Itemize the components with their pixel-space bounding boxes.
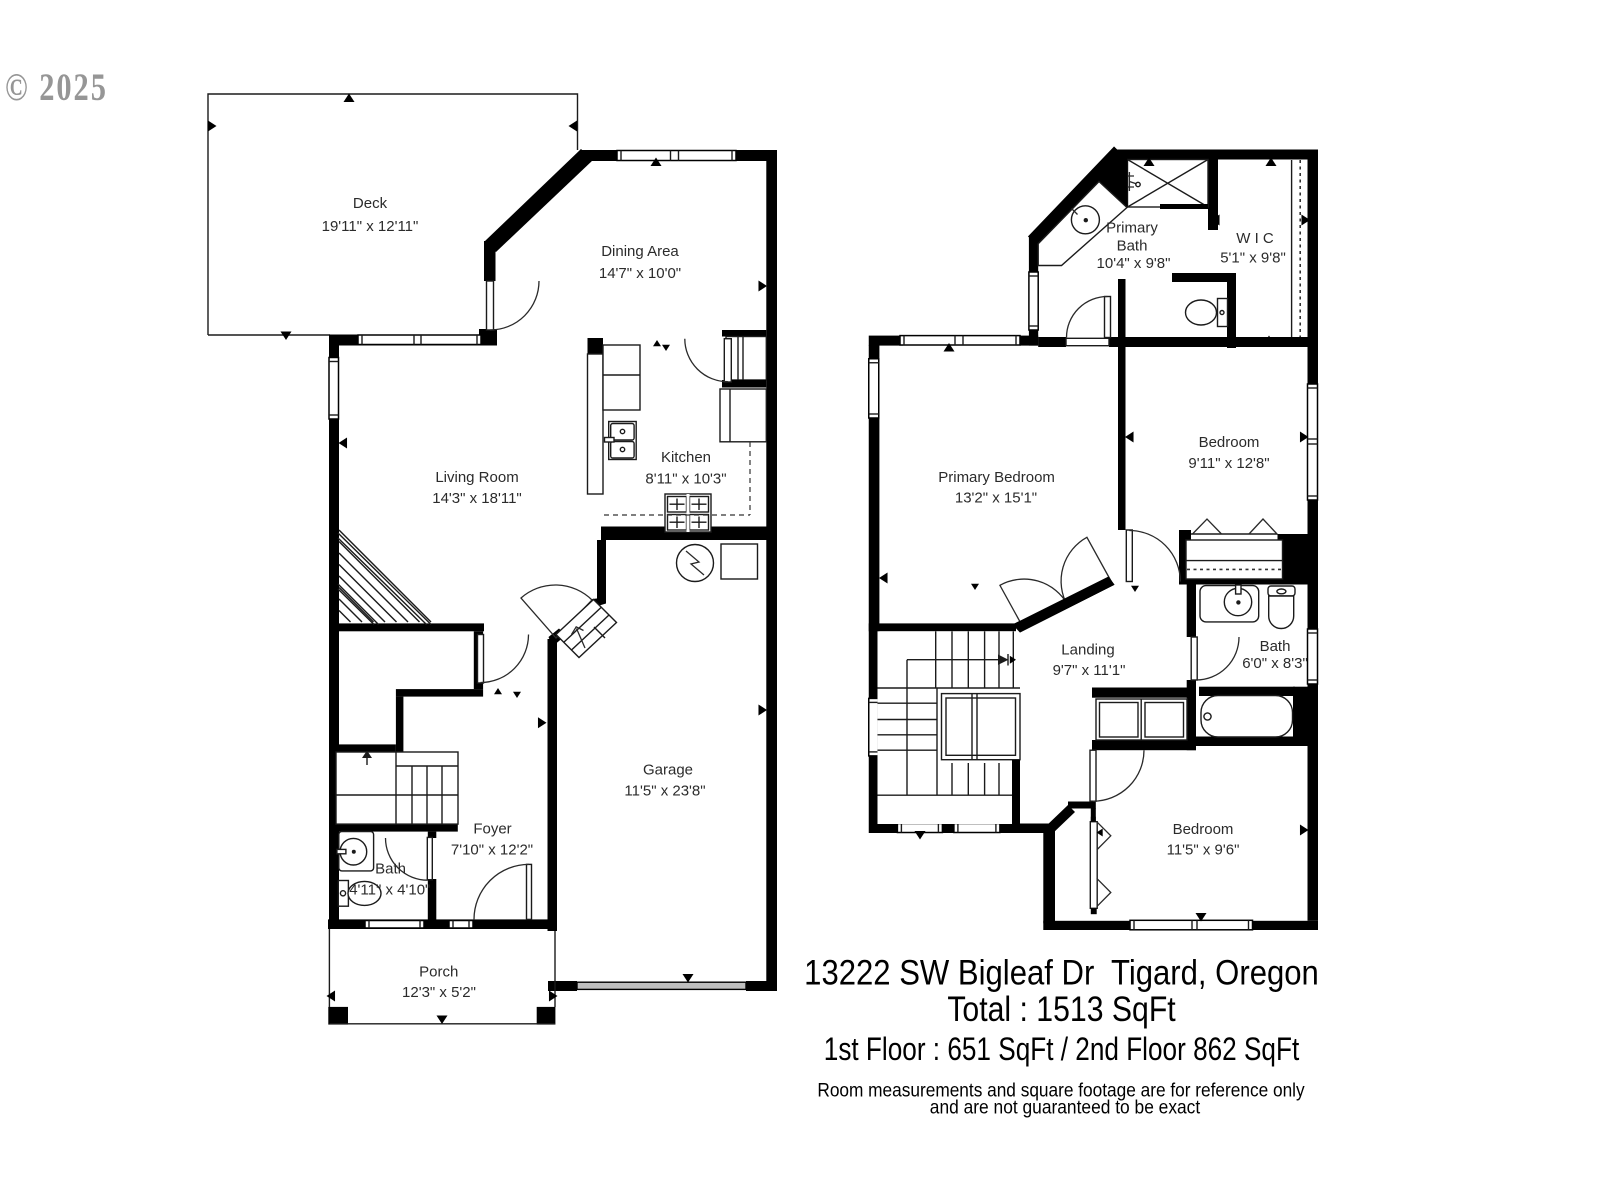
svg-text:9'11" x 12'8": 9'11" x 12'8" (1188, 455, 1269, 472)
svg-text:© 2025: © 2025 (5, 65, 108, 108)
svg-text:12'3" x 5'2": 12'3" x 5'2" (402, 984, 476, 1001)
svg-text:7'10" x 12'2": 7'10" x 12'2" (451, 842, 533, 859)
svg-text:Bath: Bath (1260, 638, 1291, 655)
svg-text:Dining Area: Dining Area (601, 243, 679, 260)
svg-text:Primary: Primary (1106, 220, 1158, 237)
svg-text:Bath: Bath (375, 861, 406, 878)
svg-text:Primary Bedroom: Primary Bedroom (938, 469, 1055, 486)
svg-text:W I C: W I C (1236, 230, 1274, 247)
svg-text:8'11" x 10'3": 8'11" x 10'3" (645, 471, 726, 488)
svg-text:6'0" x 8'3": 6'0" x 8'3" (1242, 655, 1308, 672)
svg-text:10'4" x 9'8": 10'4" x 9'8" (1097, 255, 1171, 272)
svg-text:14'7" x 10'0": 14'7" x 10'0" (599, 265, 681, 282)
svg-text:19'11" x 12'11": 19'11" x 12'11" (322, 218, 419, 235)
svg-text:13'2" x 15'1": 13'2" x 15'1" (955, 490, 1037, 507)
svg-text:5'1" x 9'8": 5'1" x 9'8" (1220, 250, 1286, 267)
svg-text:Landing: Landing (1061, 642, 1114, 659)
svg-text:Garage: Garage (643, 762, 693, 779)
svg-text:11'5" x 9'6": 11'5" x 9'6" (1167, 842, 1240, 859)
svg-text:13222 SW Bigleaf Dr Tigard, O: 13222 SW Bigleaf Dr Tigard, Oregon (804, 954, 1319, 993)
svg-text:Total : 1513 SqFt: Total : 1513 SqFt (947, 989, 1175, 1029)
svg-text:Porch: Porch (419, 964, 458, 981)
svg-text:and are not guaranteed to be e: and are not guaranteed to be exact (930, 1096, 1200, 1118)
svg-text:Bath: Bath (1117, 238, 1148, 255)
svg-text:Bedroom: Bedroom (1199, 434, 1260, 451)
svg-text:Deck: Deck (353, 195, 388, 212)
svg-text:Kitchen: Kitchen (661, 449, 711, 466)
svg-text:1st Floor : 651 SqFt / 2nd Flo: 1st Floor : 651 SqFt / 2nd Floor 862 SqF… (824, 1031, 1300, 1067)
svg-text:Living Room: Living Room (435, 469, 518, 486)
svg-text:9'7" x 11'1": 9'7" x 11'1" (1053, 662, 1126, 679)
svg-text:14'3" x 18'11": 14'3" x 18'11" (432, 490, 522, 507)
svg-text:4'11" x 4'10": 4'11" x 4'10" (349, 882, 430, 899)
svg-text:Foyer: Foyer (473, 821, 511, 838)
svg-text:11'5" x 23'8": 11'5" x 23'8" (624, 783, 705, 800)
svg-text:Bedroom: Bedroom (1173, 821, 1234, 838)
